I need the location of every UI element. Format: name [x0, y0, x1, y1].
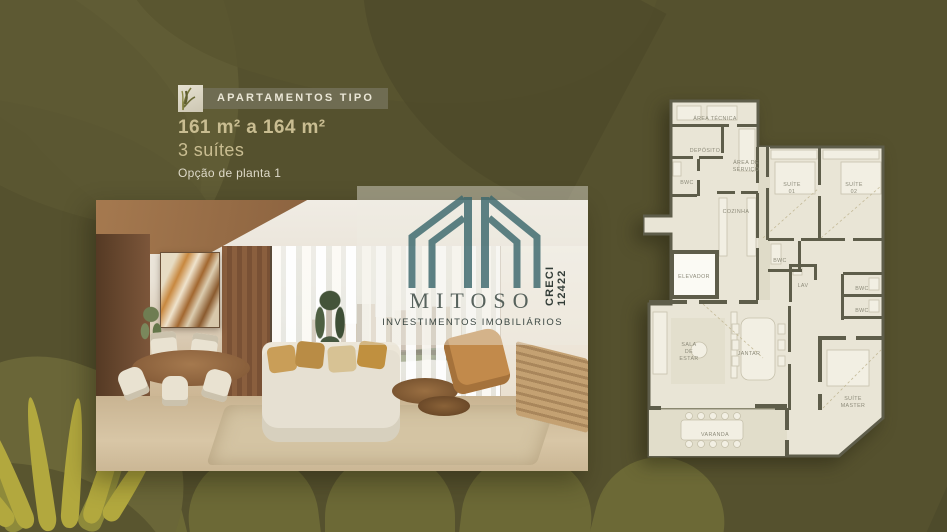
room-label: ÁREA TÉCNICA — [693, 115, 737, 122]
room-label: BWC — [855, 308, 869, 314]
room-label: ELEVADOR — [678, 274, 710, 280]
room-label: LAV — [798, 283, 809, 289]
room-label: VARANDA — [701, 432, 729, 438]
room-label: DEPÓSITO — [690, 147, 720, 154]
area-range: 161 m² a 164 m² — [178, 117, 326, 139]
suites-count: 3 suítes — [178, 140, 244, 161]
photo-dining-chair — [162, 376, 188, 406]
brand-tagline: INVESTIMENTOS IMOBILIÁRIOS — [357, 317, 588, 328]
apartment-type-badge: APARTAMENTOS TIPO — [203, 88, 388, 109]
photo-dining-table — [132, 350, 250, 386]
room-label: BWC — [680, 180, 694, 186]
photo-pillow — [327, 345, 357, 373]
slide-canvas: APARTAMENTOS TIPO 161 m² a 164 m² 3 suít… — [0, 0, 947, 532]
photo-abstract-artwork — [160, 252, 220, 328]
room-label: JANTAR — [738, 351, 761, 357]
plan-option: Opção de planta 1 — [178, 166, 281, 180]
photo-coffee-table — [418, 396, 470, 416]
photo-pillow — [295, 341, 326, 370]
floor-plan: ÁREA TÉCNICA DEPÓSITO BWC ÁREA DESERVIÇO… — [643, 98, 893, 473]
watermark-overlay: MITOSO INVESTIMENTOS IMOBILIÁRIOS CRECI … — [357, 186, 588, 345]
room-label: BWC — [773, 258, 787, 264]
leaf-badge-icon — [178, 85, 203, 112]
mitoso-logo-icon — [407, 194, 541, 288]
creci-number: CRECI 12422 — [544, 226, 568, 306]
leaf-sprig-icon — [178, 85, 203, 112]
room-label: COZINHA — [723, 209, 750, 215]
photo-pillow — [266, 344, 297, 374]
room-label: BWC — [855, 286, 869, 292]
